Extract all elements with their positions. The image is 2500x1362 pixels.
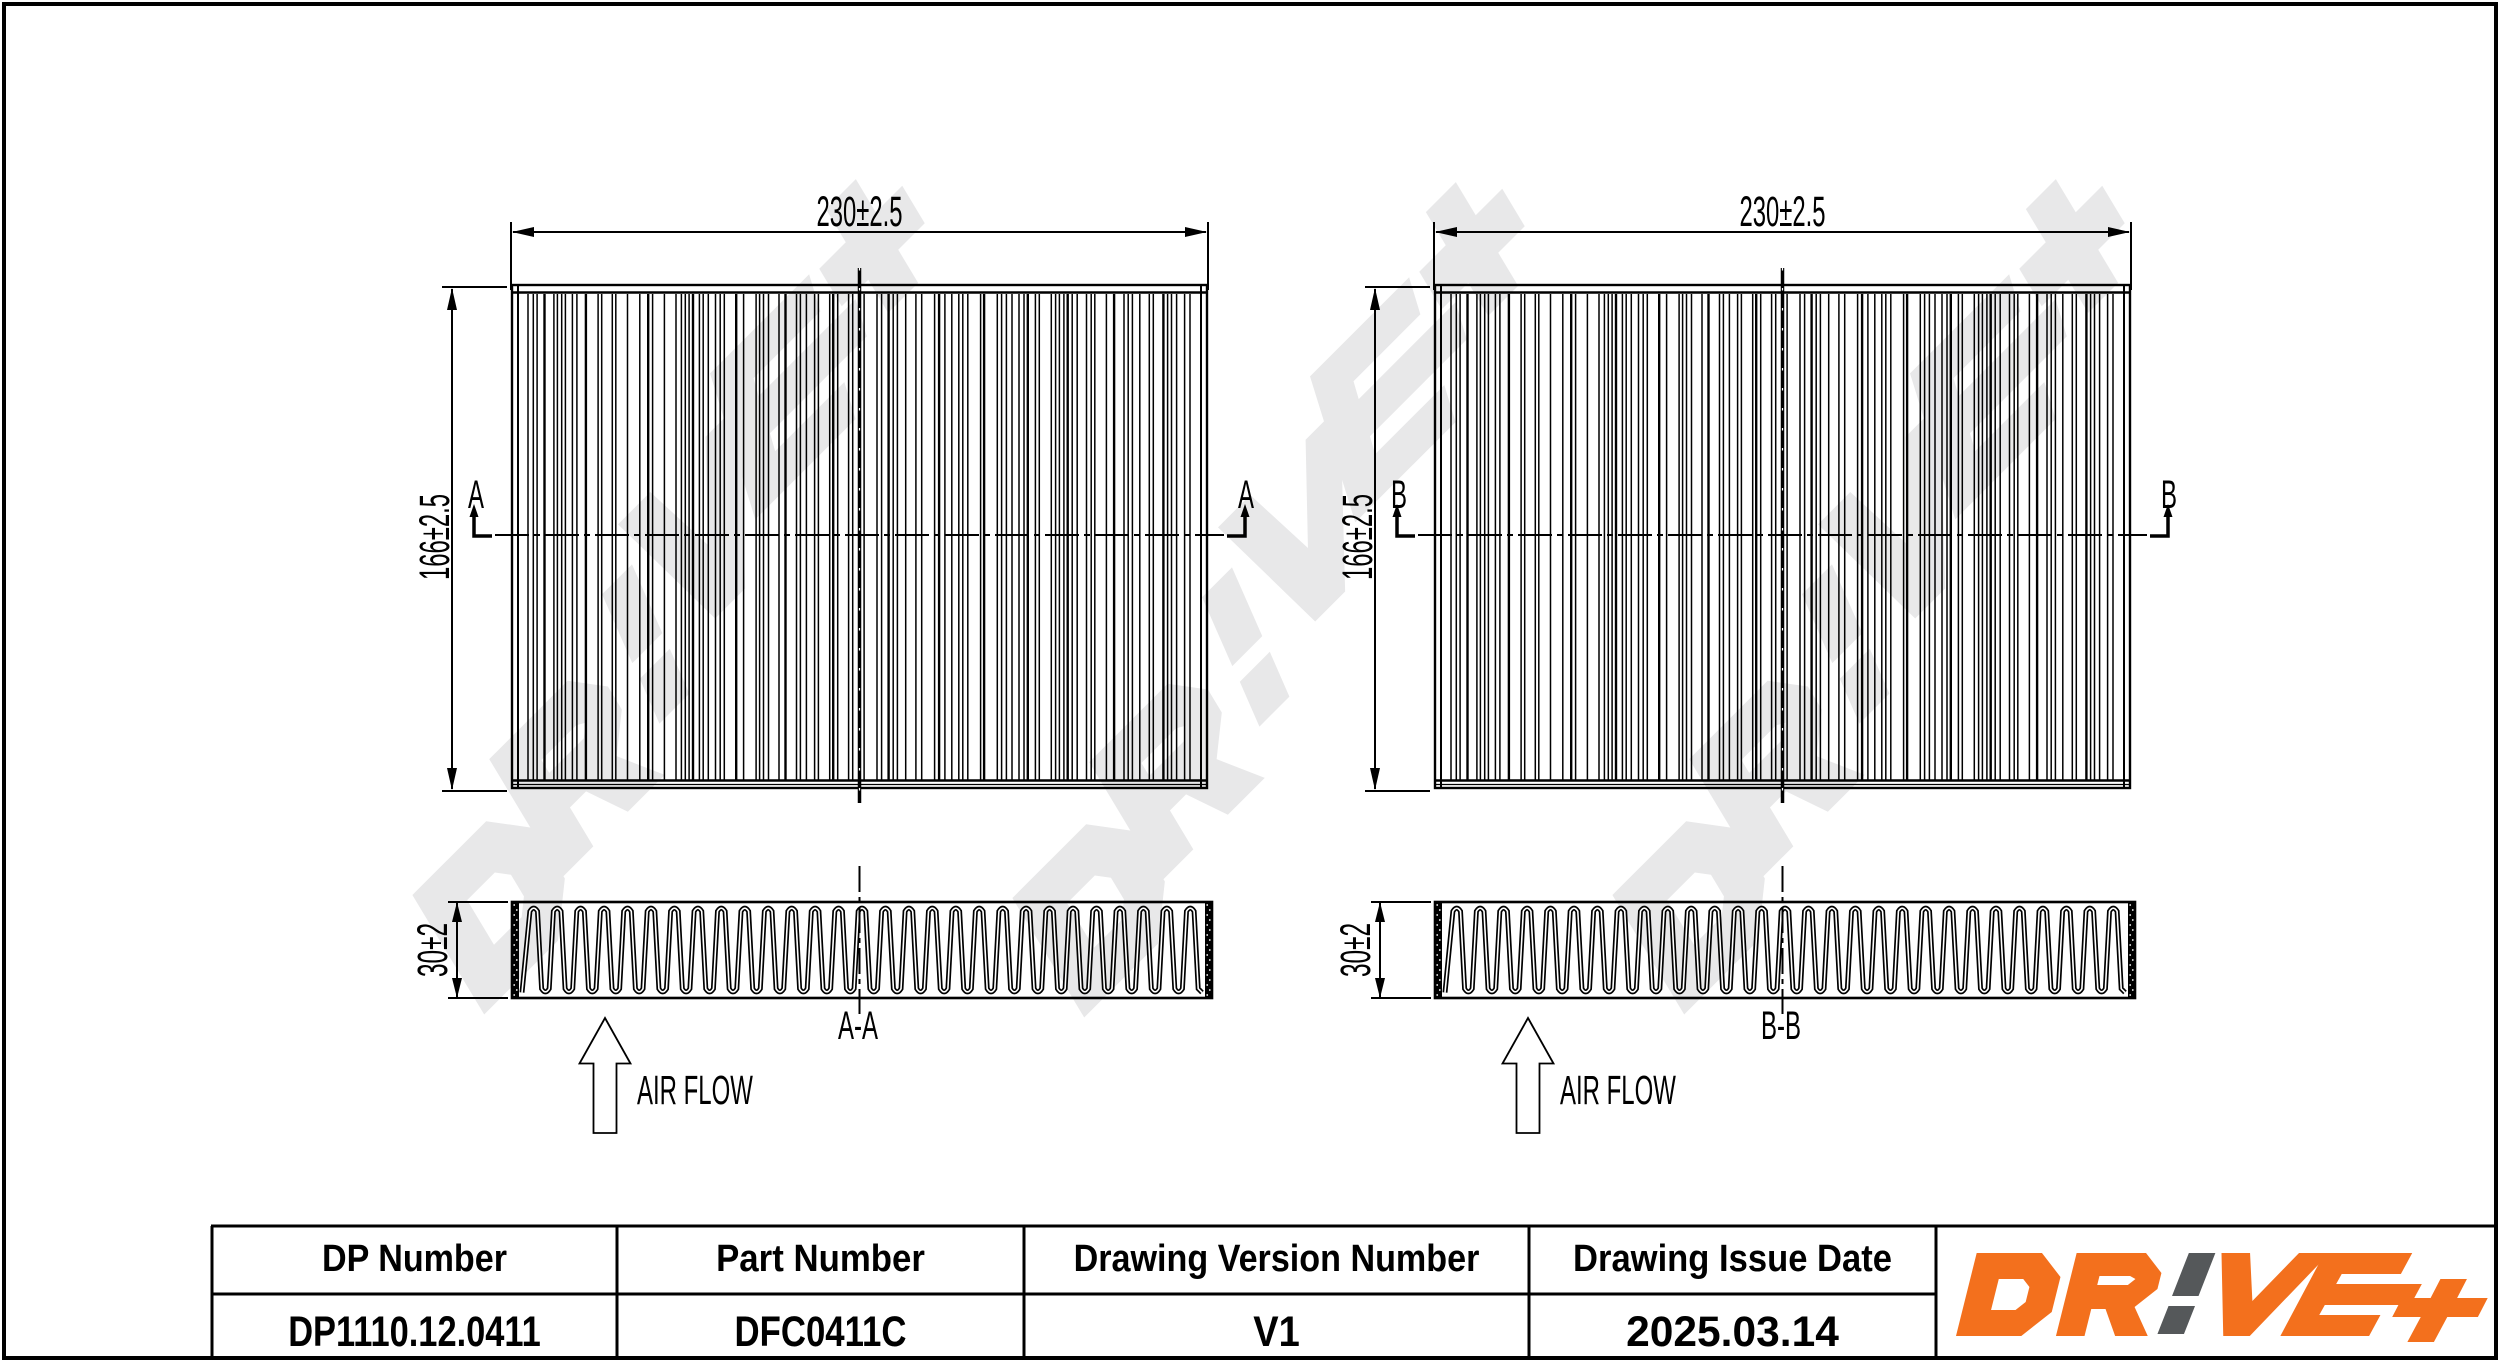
svg-text:A: A: [1238, 472, 1254, 517]
svg-text:2025.03.14: 2025.03.14: [1626, 1309, 1839, 1356]
svg-text:30±2: 30±2: [1332, 923, 1380, 977]
svg-text:AIR FLOW: AIR FLOW: [637, 1069, 753, 1114]
svg-text:A: A: [468, 472, 484, 517]
svg-text:DFC0411C: DFC0411C: [735, 1309, 907, 1356]
svg-text:166±2.5: 166±2.5: [1335, 494, 1382, 580]
svg-text:B: B: [2161, 472, 2177, 517]
svg-text:B: B: [1391, 472, 1407, 517]
svg-text:166±2.5: 166±2.5: [412, 494, 459, 580]
svg-text:V1: V1: [1253, 1307, 1300, 1355]
svg-text:AIR FLOW: AIR FLOW: [1560, 1069, 1676, 1114]
svg-text:230±2.5: 230±2.5: [1739, 189, 1825, 236]
svg-text:Drawing Version Number: Drawing Version Number: [1074, 1236, 1480, 1279]
svg-text:Part Number: Part Number: [716, 1237, 925, 1280]
svg-text:30±2: 30±2: [409, 923, 457, 977]
svg-text:DP Number: DP Number: [322, 1236, 507, 1279]
svg-text:A-A: A-A: [838, 1003, 878, 1048]
svg-text:Drawing Issue Date: Drawing Issue Date: [1573, 1236, 1892, 1279]
svg-text:230±2.5: 230±2.5: [816, 189, 902, 236]
svg-text:B-B: B-B: [1761, 1003, 1801, 1048]
svg-text:DP1110.12.0411: DP1110.12.0411: [288, 1309, 541, 1356]
